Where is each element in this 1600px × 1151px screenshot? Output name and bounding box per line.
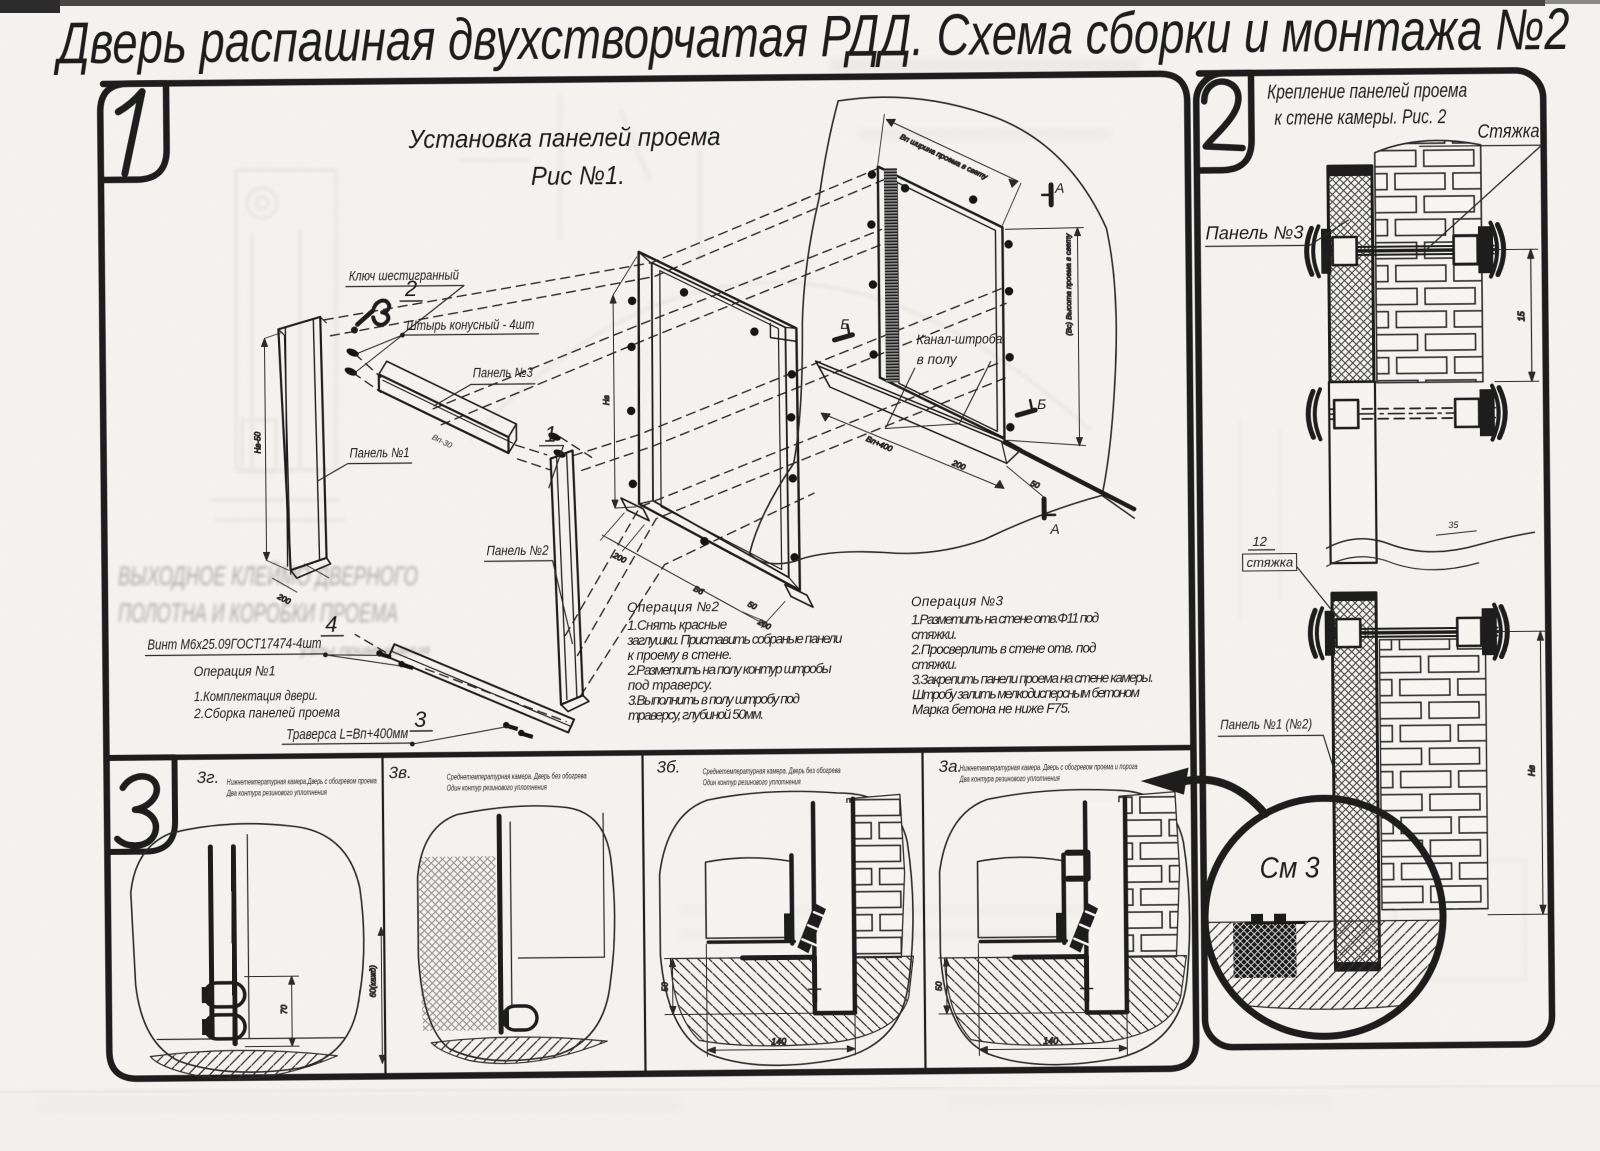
svg-text:(Вс) Высота проема в свету: (Вс) Высота проема в свету [1063, 232, 1073, 335]
svg-text:стяжки.: стяжки. [912, 657, 958, 672]
svg-text:Панель №3: Панель №3 [1205, 222, 1303, 243]
svg-text:Два контура резинового уплотне: Два контура резинового уплотнения [226, 787, 327, 798]
svg-text:2.Сборка панелей проема: 2.Сборка панелей проема [193, 704, 340, 721]
svg-text:15: 15 [1516, 310, 1526, 321]
svg-text:3в.: 3в. [389, 763, 412, 782]
svg-text:ПОЛОТНА И КОРОБКИ ПРОЕМА: ПОЛОТНА И КОРОБКИ ПРОЕМА [118, 598, 398, 628]
svg-text:50: 50 [660, 982, 670, 992]
svg-text:3.Выполнить в полу штробу под: 3.Выполнить в полу штробу под [628, 691, 801, 708]
svg-text:Винт М6х25.09ГОСТ17474-4шт: Винт М6х25.09ГОСТ17474-4шт [147, 635, 321, 654]
svg-text:под траверсу.: под траверсу. [628, 677, 713, 693]
svg-text:Один контур резинового уплотне: Один контур резинового уплотнения [703, 776, 801, 787]
svg-text:4: 4 [325, 612, 337, 637]
svg-text:Операция №3: Операция №3 [911, 593, 1004, 609]
svg-text:2.Разметить на полу контур штр: 2.Разметить на полу контур штробы [627, 661, 832, 678]
svg-text:1: 1 [544, 422, 556, 447]
svg-text:Нв-50: Нв-50 [253, 431, 262, 453]
svg-text:А: А [1049, 521, 1059, 537]
svg-text:2.Просверлить в стене отв.: 2.Просверлить в стене отв. под [910, 640, 1097, 657]
svg-text:Два контура резинового уплотне: Два контура резинового уплотнения [959, 773, 1060, 784]
svg-text:в полу: в полу [917, 351, 958, 367]
svg-text:Нв: Нв [602, 395, 611, 405]
svg-text:Панель №2: Панель №2 [486, 543, 549, 559]
svg-text:к проему в стене.: к проему в стене. [627, 647, 732, 663]
svg-text:ВЫХОДНОЕ КЛЕЙМО ДВЕРНОГО: ВЫХОДНОЕ КЛЕЙМО ДВЕРНОГО [118, 559, 418, 591]
svg-text:Среднетемпературная камера. Дв: Среднетемпературная камера. Дверь без об… [703, 765, 841, 776]
svg-text:См 3: См 3 [1259, 851, 1320, 885]
svg-text:траверсу, глубиной 50мм.: траверсу, глубиной 50мм. [628, 707, 764, 723]
svg-text:1.Снять красные: 1.Снять красные [627, 617, 727, 633]
svg-text:Операция №2: Операция №2 [627, 599, 720, 615]
svg-text:3б.: 3б. [656, 757, 680, 776]
svg-text:Штробу залить мелкодисперсным: Штробу залить мелкодисперсным бетоном [912, 685, 1140, 702]
svg-text:1.Комплектация двери.: 1.Комплектация двери. [194, 687, 318, 704]
svg-text:Панель №1: Панель №1 [349, 445, 409, 461]
svg-text:3: 3 [414, 707, 427, 732]
svg-text:Канал-штроба: Канал-штроба [916, 330, 1002, 347]
svg-text:3г.: 3г. [197, 768, 220, 787]
svg-text:1.Разметить на стене отв.Ф11 п: 1.Разметить на стене отв.Ф11 под [911, 610, 1100, 627]
svg-text:140: 140 [771, 1036, 786, 1046]
svg-text:140: 140 [1043, 1036, 1058, 1046]
svg-text:12: 12 [1252, 534, 1267, 549]
svg-text:50: 50 [934, 981, 944, 991]
svg-text:Нижнетемпературная камера.Двер: Нижнетемпературная камера.Дверь с обогре… [227, 775, 377, 786]
svg-text:Траверса L=Вп+400мм: Траверса L=Вп+400мм [286, 725, 408, 743]
svg-text:Б: Б [840, 316, 849, 332]
svg-text:Штырь конусный - 4шт: Штырь конусный - 4шт [406, 317, 534, 333]
svg-text:Операция №1: Операция №1 [194, 662, 276, 679]
svg-text:Рис №1.: Рис №1. [531, 160, 625, 191]
svg-text:35: 35 [1448, 520, 1459, 530]
svg-text:Панель №3: Панель №3 [473, 365, 534, 381]
svg-text:А: А [1054, 180, 1064, 196]
svg-text:Нв: Нв [1527, 765, 1537, 777]
svg-text:к стене камеры. Рис. 2: к стене камеры. Рис. 2 [1274, 106, 1446, 130]
svg-text:2: 2 [404, 276, 417, 301]
svg-text:Марка бетона не ниже F75.: Марка бетона не ниже F75. [912, 701, 1071, 718]
svg-text:Нижнетемпературная камера. Две: Нижнетемпературная камера. Дверь с обогр… [960, 761, 1138, 773]
svg-text:Стяжка: Стяжка [1477, 121, 1539, 143]
svg-text:70: 70 [279, 1005, 289, 1015]
svg-text:Панель №1 (№2): Панель №1 (№2) [1220, 715, 1312, 732]
svg-text:Крепление панелей проема: Крепление панелей проема [1267, 80, 1467, 104]
svg-text:стяжки.: стяжки. [911, 627, 957, 642]
svg-text:стяжка: стяжка [1247, 555, 1294, 570]
svg-text:Б: Б [1037, 396, 1046, 412]
svg-text:Среднетемпературная камера. Дв: Среднетемпературная камера. Дверь без об… [447, 770, 587, 781]
svg-text:Установка панелей проема: Установка панелей проема [407, 121, 720, 154]
svg-text:заглушки. Приставить собраные: заглушки. Приставить собраные панели [626, 631, 843, 648]
svg-text:60(кажд): 60(кажд) [368, 965, 377, 998]
svg-text:Один контур резинового уплотне: Один контур резинового уплотнения [447, 782, 547, 793]
